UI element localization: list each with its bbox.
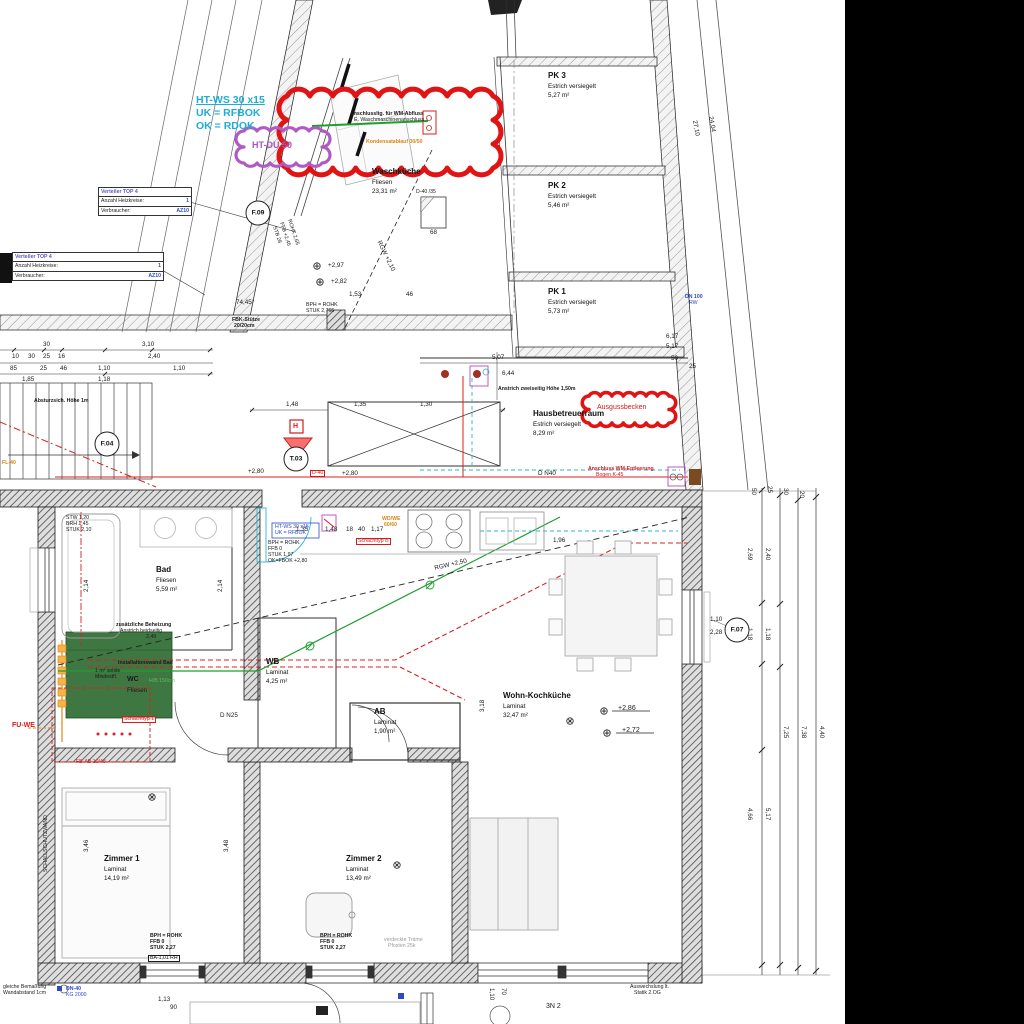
plan-text: Schachttyp B xyxy=(356,538,391,545)
plan-text: 2,14 xyxy=(218,580,224,592)
plan-text: HT-WS 30 x15 xyxy=(196,95,265,106)
room-fl: Estrich versiegelt xyxy=(548,298,596,307)
plan-text: 46 xyxy=(406,292,413,298)
room-ar: 4,25 m² xyxy=(266,677,288,686)
plan-text: H xyxy=(293,423,298,430)
plan-text: 1,10 xyxy=(173,366,185,372)
plan-text: 25 xyxy=(766,486,772,493)
room-nm: PK 3 xyxy=(548,70,596,82)
plan-text: Statik 2.OG xyxy=(634,991,661,996)
floor-plan-screenshot: HT-WS 30 x15UK = RFBOKOK = RDOKHT-DU 50A… xyxy=(0,0,1024,1024)
plan-text: 24,04 xyxy=(707,116,716,133)
plan-text: 1,18 xyxy=(98,377,110,383)
room-ar: 23,31 m² xyxy=(372,187,421,196)
plan-text: 20/20cm xyxy=(234,324,254,329)
plan-text: 4,66 xyxy=(746,808,752,820)
plan-text: SCHALLSCHUTZWAND xyxy=(44,815,49,872)
verteiler-box-2: Verteiler TOP 4Anzahl Heizkreise:1Verbra… xyxy=(12,252,164,281)
room-nm: PK 1 xyxy=(548,286,596,298)
plan-text: 4,40 xyxy=(818,726,824,738)
room-nm: Bad xyxy=(156,564,177,576)
verteiler-row: Verbraucher:AZ10 xyxy=(99,207,191,215)
plan-text: 68 xyxy=(430,230,437,236)
plan-text: 7,25 xyxy=(782,726,788,738)
room-ar: 5,59 m² xyxy=(156,585,177,594)
verteiler-title: Verteiler TOP 4 xyxy=(99,188,191,197)
plan-text: +2,97 xyxy=(328,263,344,269)
plan-text: UK = RFBOK xyxy=(196,108,260,119)
room-nm: Hausbetreuerraum xyxy=(533,408,604,420)
plan-text: 6,17 xyxy=(666,334,678,340)
plan-text: E. Waschmaschinenanschluss xyxy=(354,118,424,123)
plan-text: 85 xyxy=(10,366,17,372)
room-nm: Zimmer 1 xyxy=(104,853,140,865)
room-ar: 5,27 m² xyxy=(548,91,596,100)
room-nm: Zimmer 2 xyxy=(346,853,382,865)
plan-text: 25 xyxy=(689,364,696,370)
plan-text: 5,17 xyxy=(764,808,770,820)
plan-text: 25 xyxy=(40,366,47,372)
plan-text: 1,35 xyxy=(354,402,366,408)
room-fl: Fliesen xyxy=(156,576,177,585)
plan-text: BA-1,01 RH xyxy=(148,955,180,962)
plan-text: Installationswand Bad xyxy=(118,661,173,666)
plan-text: 70 xyxy=(500,988,506,995)
room-ar: 5,46 m² xyxy=(548,201,596,210)
plan-text: 30 xyxy=(43,342,50,348)
plan-text: 1,10 xyxy=(710,617,722,623)
plan-text: 40 xyxy=(358,527,365,533)
plan-text: 6,44 xyxy=(502,371,514,377)
plan-text: 2,49 xyxy=(146,635,156,640)
level-point-symbol: ⊕ xyxy=(599,707,608,718)
room-label-wb: WBLaminat4,25 m² xyxy=(266,656,288,686)
plan-text: 3,18 xyxy=(480,700,486,712)
plan-text: +2,86 xyxy=(618,705,636,712)
verteiler-box-1: Verteiler TOP 4Anzahl Heizkreise:1Verbra… xyxy=(98,187,192,216)
plan-text: WC xyxy=(127,676,139,683)
plan-text: 10 xyxy=(12,354,19,360)
plan-text: Kondensatablauf 30/50 xyxy=(366,140,423,145)
plan-text: STUK 2,27 xyxy=(150,946,176,951)
plan-text: Absturzsich. Höhe 1m xyxy=(34,399,88,404)
plan-text: FL-40 xyxy=(2,461,16,466)
plan-text: 1,10 xyxy=(98,366,110,372)
light-outlet-symbol: ⊗ xyxy=(565,717,574,728)
plan-text: 3,46 xyxy=(84,840,90,852)
plan-text: STUK 2,765 xyxy=(306,309,334,314)
room-nm: WB xyxy=(266,656,288,668)
plan-text: 7,38 xyxy=(800,726,806,738)
plan-text: Pfosten 25k xyxy=(388,944,415,949)
plan-text: 90 xyxy=(170,1005,177,1011)
plan-text: 2,40 xyxy=(764,548,770,560)
plan-text: UK = RFBOK xyxy=(275,531,306,536)
plan-text: 30 xyxy=(28,354,35,360)
ref-tag-F.07: F.07 xyxy=(725,618,750,643)
plan-text: 18 xyxy=(346,527,353,533)
plan-text: Schachttyp 1 xyxy=(122,716,156,723)
plan-text: 3,48 xyxy=(224,840,230,852)
verteiler-row: Verbraucher:AZ10 xyxy=(13,272,163,280)
room-label-pk-3: PK 3Estrich versiegelt5,27 m² xyxy=(548,70,596,100)
room-ar: 32,47 m² xyxy=(503,711,571,720)
room-fl: Estrich versiegelt xyxy=(533,420,604,429)
room-label-hausbetreuerraum: HausbetreuerraumEstrich versiegelt8,29 m… xyxy=(533,408,604,438)
room-ar: 1,90 m² xyxy=(374,727,396,736)
room-nm: Wohn-Kochküche xyxy=(503,690,571,702)
plan-text: 1,10 xyxy=(488,988,494,1000)
room-fl: Fliesen xyxy=(372,178,421,187)
plan-text: 1,13 xyxy=(158,997,170,1003)
room-fl: Laminat xyxy=(346,865,382,874)
plan-text: 60/60 xyxy=(384,523,397,528)
level-point-symbol: ⊕ xyxy=(312,262,321,273)
room-ar: 8,29 m² xyxy=(533,429,604,438)
light-outlet-symbol: ⊗ xyxy=(392,861,401,872)
plan-text: STUK 2,10 xyxy=(66,528,91,533)
canvas-void xyxy=(845,0,1024,1024)
plan-text: 25 xyxy=(43,354,50,360)
plan-text: OK=FBOK +2,80 xyxy=(268,559,307,564)
plan-text: H/B 150cm xyxy=(149,679,175,684)
plan-text: STUK 2,27 xyxy=(320,946,346,951)
ref-tag-F.04: F.04 xyxy=(95,432,120,457)
plan-text: 1,96 xyxy=(553,538,565,544)
plan-text: KG 2000 xyxy=(66,993,86,998)
room-nm: Waschküche xyxy=(372,166,421,178)
plan-text: 50 xyxy=(750,488,756,495)
plan-text: 1,18 xyxy=(764,628,770,640)
plan-text: +2,72 xyxy=(622,727,640,734)
room-nm: PK 2 xyxy=(548,180,596,192)
room-label-pk-2: PK 2Estrich versiegelt5,46 m² xyxy=(548,180,596,210)
plan-text: 46 xyxy=(60,366,67,372)
plan-text: D N40 xyxy=(538,471,556,477)
room-label-ab: ABLaminat1,90 m² xyxy=(374,706,396,736)
plan-text: 1,48 xyxy=(286,402,298,408)
plan-text: 1,53 xyxy=(349,292,361,298)
plan-text: 20 xyxy=(798,491,804,498)
room-fl: Laminat xyxy=(104,865,140,874)
plan-text: Fliesen xyxy=(127,688,147,694)
room-fl: Estrich versiegelt xyxy=(548,82,596,91)
plan-text: 50 xyxy=(671,356,678,362)
plan-text: 2,14 xyxy=(84,580,90,592)
plan-text: 1,30 xyxy=(420,402,432,408)
plan-text: Anstrich zweiseitig Höhe 1,50m xyxy=(498,387,576,392)
room-label-bad: BadFliesen5,59 m² xyxy=(156,564,177,594)
plan-text: +2,80 xyxy=(342,471,358,477)
plan-text: Wandabstand 1cm xyxy=(3,991,46,996)
ref-tag-T.03: T.03 xyxy=(284,447,309,472)
plan-text: RGW +2,50 xyxy=(434,559,468,573)
room-label-waschk-che: WaschkücheFliesen23,31 m² xyxy=(372,166,421,196)
room-fl: Estrich versiegelt xyxy=(548,192,596,201)
room-label-zimmer-2: Zimmer 2Laminat13,49 m² xyxy=(346,853,382,883)
verteiler-title: Verteiler TOP 4 xyxy=(13,253,163,262)
plan-text: Bogen K-45 xyxy=(596,473,623,478)
plan-text: 5,17 xyxy=(666,344,678,350)
plan-text: +2,82 xyxy=(331,279,347,285)
plan-text: RGW +2,10 xyxy=(375,240,395,272)
room-label-wohn-kochk-che: Wohn-KochkücheLaminat32,47 m² xyxy=(503,690,571,720)
plan-text: Mindestfl. xyxy=(95,675,117,680)
plan-text: 2,40 xyxy=(148,354,160,360)
room-fl: Laminat xyxy=(374,718,396,727)
room-fl: Laminat xyxy=(503,702,571,711)
plan-text: D N25 xyxy=(220,713,238,719)
plan-text: 1,48 xyxy=(325,527,337,533)
plan-text: 27,10 xyxy=(691,120,700,137)
plan-text: FB-AB 10/48 xyxy=(76,760,106,765)
level-point-symbol: ⊕ xyxy=(315,278,324,289)
plan-text: +2,80 xyxy=(248,469,264,475)
room-ar: 13,49 m² xyxy=(346,874,382,883)
plan-text: 1,17 xyxy=(371,527,383,533)
room-label-pk-1: PK 1Estrich versiegelt5,73 m² xyxy=(548,286,596,316)
room-ar: 5,73 m² xyxy=(548,307,596,316)
plan-text: FU-WE xyxy=(12,722,35,729)
plan-text: 3,10 xyxy=(142,342,154,348)
room-fl: Laminat xyxy=(266,668,288,677)
verteiler-row: Anzahl Heizkreise:1 xyxy=(99,197,191,206)
plan-text: 74,45° xyxy=(236,300,254,306)
plan-text: 30 xyxy=(782,488,788,495)
light-outlet-symbol: ⊗ xyxy=(147,793,156,804)
level-point-symbol: ⊕ xyxy=(602,729,611,740)
plan-text: 5,07 xyxy=(492,355,504,361)
plan-text: 3N 2 xyxy=(546,1003,561,1010)
plan-text: 16 xyxy=(58,354,65,360)
room-nm: AB xyxy=(374,706,396,718)
plan-text: Ausgussbecken xyxy=(597,404,646,411)
room-ar: 14,19 m² xyxy=(104,874,140,883)
ref-tag-F.09: F.09 xyxy=(246,201,271,226)
plan-text: RW xyxy=(689,301,698,306)
text-annotations-layer: HT-WS 30 x15UK = RFBOKOK = RDOKHT-DU 50A… xyxy=(0,0,846,1024)
room-label-zimmer-1: Zimmer 1Laminat14,19 m² xyxy=(104,853,140,883)
plan-text: HT-DU 50 xyxy=(252,141,292,150)
plan-text: 2,28 xyxy=(710,630,722,636)
verteiler-row: Anzahl Heizkreise:1 xyxy=(13,262,163,271)
plan-text: D-40 xyxy=(310,470,325,477)
plan-text: 2,69 xyxy=(746,548,752,560)
plan-text: 1,85 xyxy=(22,377,34,383)
plan-text: OK = RDOK xyxy=(196,121,255,132)
